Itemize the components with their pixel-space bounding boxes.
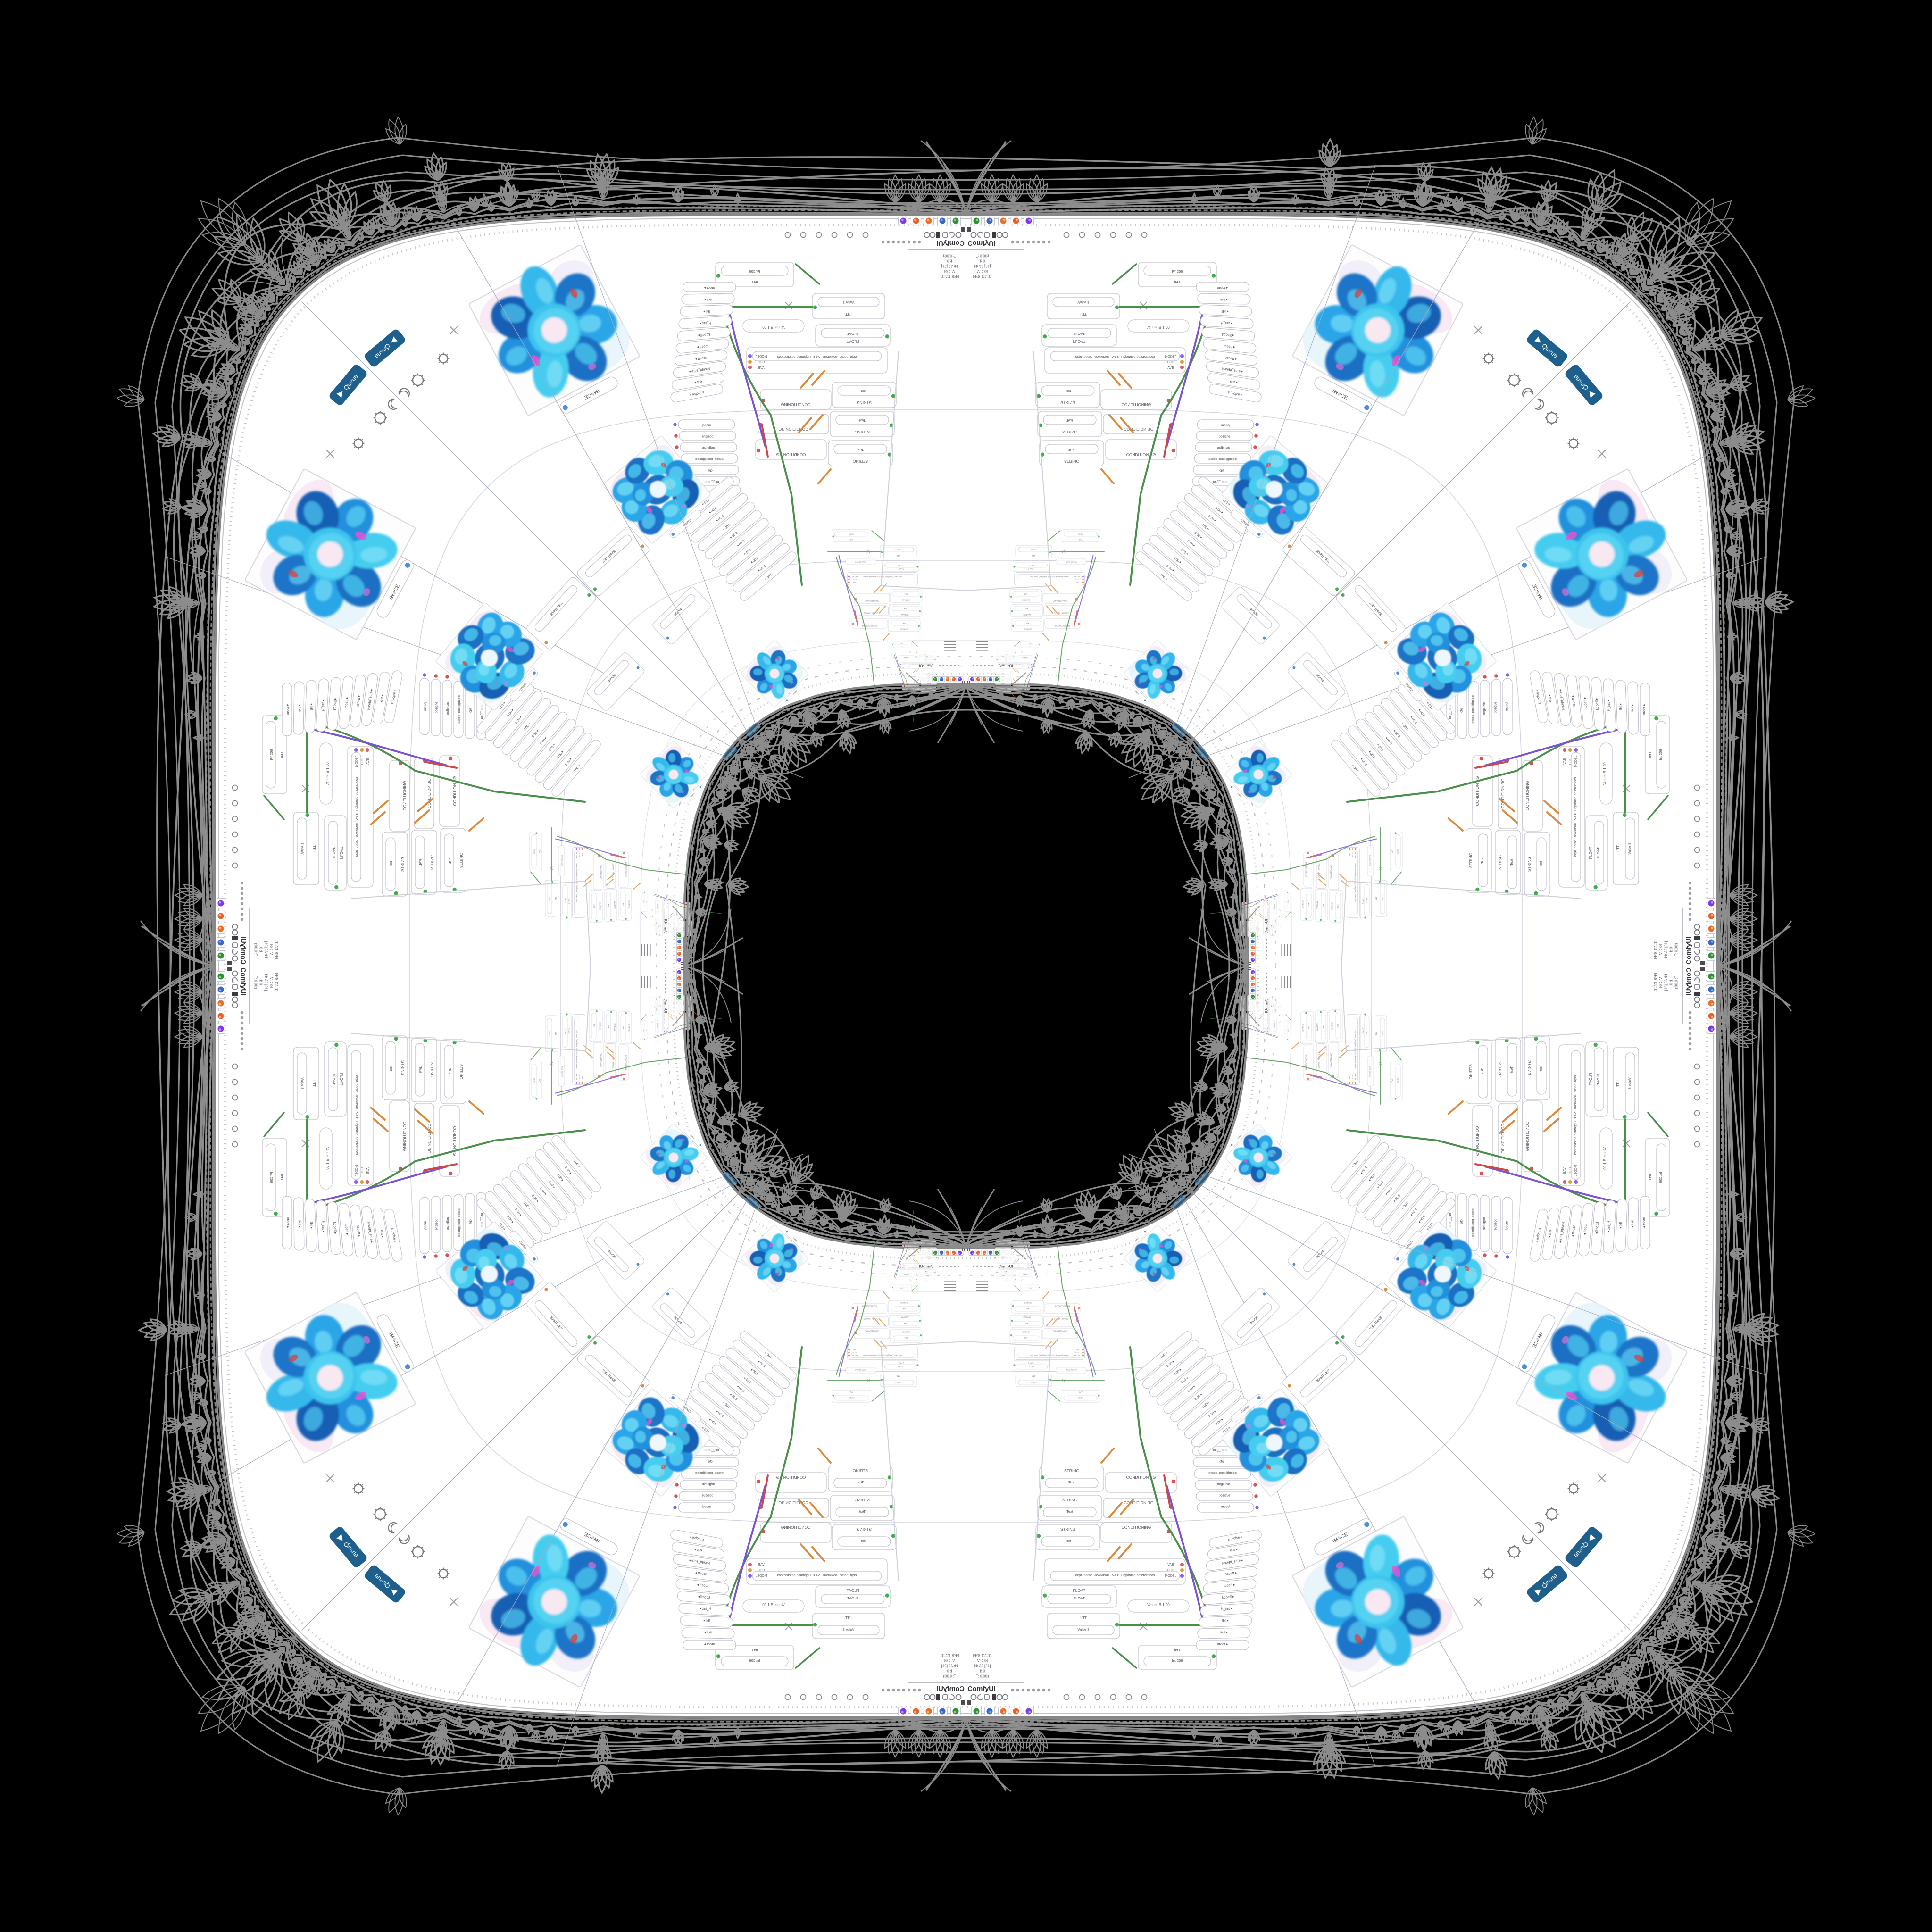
svg-text:STRING: STRING xyxy=(1064,459,1079,464)
svg-text:T: 0.00s: T: 0.00s xyxy=(976,253,989,258)
svg-text:Value_B 1.00: Value_B 1.00 xyxy=(1147,325,1170,329)
svg-text:CONDITIONING: CONDITIONING xyxy=(1122,402,1151,407)
svg-text:VAE: VAE xyxy=(758,366,765,369)
svg-text:ComfyUI: ComfyUI xyxy=(967,239,996,247)
svg-text:CONDITIONING: CONDITIONING xyxy=(781,402,811,407)
svg-text:FLOAT: FLOAT xyxy=(847,332,858,336)
svg-text:Text: Text xyxy=(1065,389,1072,393)
svg-text:CLIP: CLIP xyxy=(1167,360,1174,363)
svg-text:model: model xyxy=(1221,423,1230,427)
svg-text:INT: INT xyxy=(1080,312,1087,316)
svg-text:FLOAT: FLOAT xyxy=(1073,339,1086,344)
svg-text:order ▸: order ▸ xyxy=(704,286,715,290)
svg-text:cfg: cfg xyxy=(1219,468,1224,473)
svg-text:I: 0: I: 0 xyxy=(980,258,985,263)
svg-text:Text: Text xyxy=(860,389,867,393)
svg-text:INT: INT xyxy=(845,312,852,316)
svg-text:FLOAT: FLOAT xyxy=(847,339,859,344)
svg-text:VAE: VAE xyxy=(1167,366,1174,369)
svg-text:N: 33 [21]: N: 33 [21] xyxy=(974,264,991,268)
svg-text:MODEL: MODEL xyxy=(755,354,767,358)
svg-text:Int 256: Int 256 xyxy=(749,269,760,274)
svg-text:Text: Text xyxy=(858,418,866,423)
svg-text:h_init ▸: h_init ▸ xyxy=(700,321,711,325)
svg-text:negative: negative xyxy=(702,446,715,450)
svg-text:T: 0.00s: T: 0.00s xyxy=(943,253,956,258)
svg-text:model: model xyxy=(702,423,711,427)
svg-text:itol ▸: itol ▸ xyxy=(704,298,712,302)
svg-text:V: 234: V: 234 xyxy=(944,269,955,273)
svg-text:ComfyUI: ComfyUI xyxy=(936,239,965,247)
svg-text:lbf ▸: lbf ▸ xyxy=(703,309,710,314)
svg-text:STRING: STRING xyxy=(1060,400,1075,405)
svg-text:INT: INT xyxy=(751,280,758,284)
svg-text:ckpt_name RealVisXL_V4.0_Lig: ckpt_name RealVisXL_V4.0_Lightning.safet… xyxy=(777,355,857,359)
svg-text:MODEL: MODEL xyxy=(1165,354,1177,358)
svg-text:ckpt_name RealVisXL_V4.0_Lig: ckpt_name RealVisXL_V4.0_Lightning.safet… xyxy=(1075,355,1155,359)
svg-text:ComfyUI: ComfyUI xyxy=(998,663,1013,667)
svg-text:positive: positive xyxy=(702,434,713,439)
svg-text:INT: INT xyxy=(1174,280,1181,284)
svg-text:FPS:111.11: FPS:111.11 xyxy=(940,274,959,278)
svg-text:empty_conditioning: empty_conditioning xyxy=(695,457,724,461)
svg-text:empty_conditioning: empty_conditioning xyxy=(1208,457,1237,461)
svg-text:N: 33 [21]: N: 33 [21] xyxy=(941,264,958,268)
svg-text:FLOAT: FLOAT xyxy=(1074,332,1085,336)
svg-text:FPS:111.11: FPS:111.11 xyxy=(973,274,992,278)
svg-text:Text: Text xyxy=(1068,448,1075,452)
svg-text:CLIP: CLIP xyxy=(758,360,765,363)
svg-text:neg_scale: neg_scale xyxy=(704,480,719,484)
svg-text:h_init ▸: h_init ▸ xyxy=(1221,321,1233,325)
svg-text:Value 8: Value 8 xyxy=(1078,300,1090,305)
svg-text:Text: Text xyxy=(857,448,864,452)
svg-text:lbf ▸: lbf ▸ xyxy=(1222,309,1229,314)
svg-text:Value 8: Value 8 xyxy=(843,300,855,305)
svg-text:Int 256: Int 256 xyxy=(1172,269,1183,274)
svg-text:itol ▸: itol ▸ xyxy=(1220,298,1228,302)
svg-text:order ▸: order ▸ xyxy=(1217,286,1228,290)
svg-text:Text: Text xyxy=(1066,418,1074,423)
svg-text:cfg: cfg xyxy=(708,468,713,473)
svg-text:Value_B 1.00: Value_B 1.00 xyxy=(762,325,785,329)
svg-text:STRING: STRING xyxy=(855,430,870,434)
svg-text:STRING: STRING xyxy=(853,459,868,464)
svg-text:negative: negative xyxy=(1217,446,1230,450)
svg-text:neg_scale: neg_scale xyxy=(1213,480,1229,484)
svg-text:STRING: STRING xyxy=(1062,430,1077,434)
svg-text:positive: positive xyxy=(1219,434,1230,439)
svg-text:ComfyUI: ComfyUI xyxy=(919,663,933,667)
svg-text:STRING: STRING xyxy=(857,400,872,405)
svg-text:I: 0: I: 0 xyxy=(947,258,952,263)
svg-text:V: 234: V: 234 xyxy=(977,269,988,273)
